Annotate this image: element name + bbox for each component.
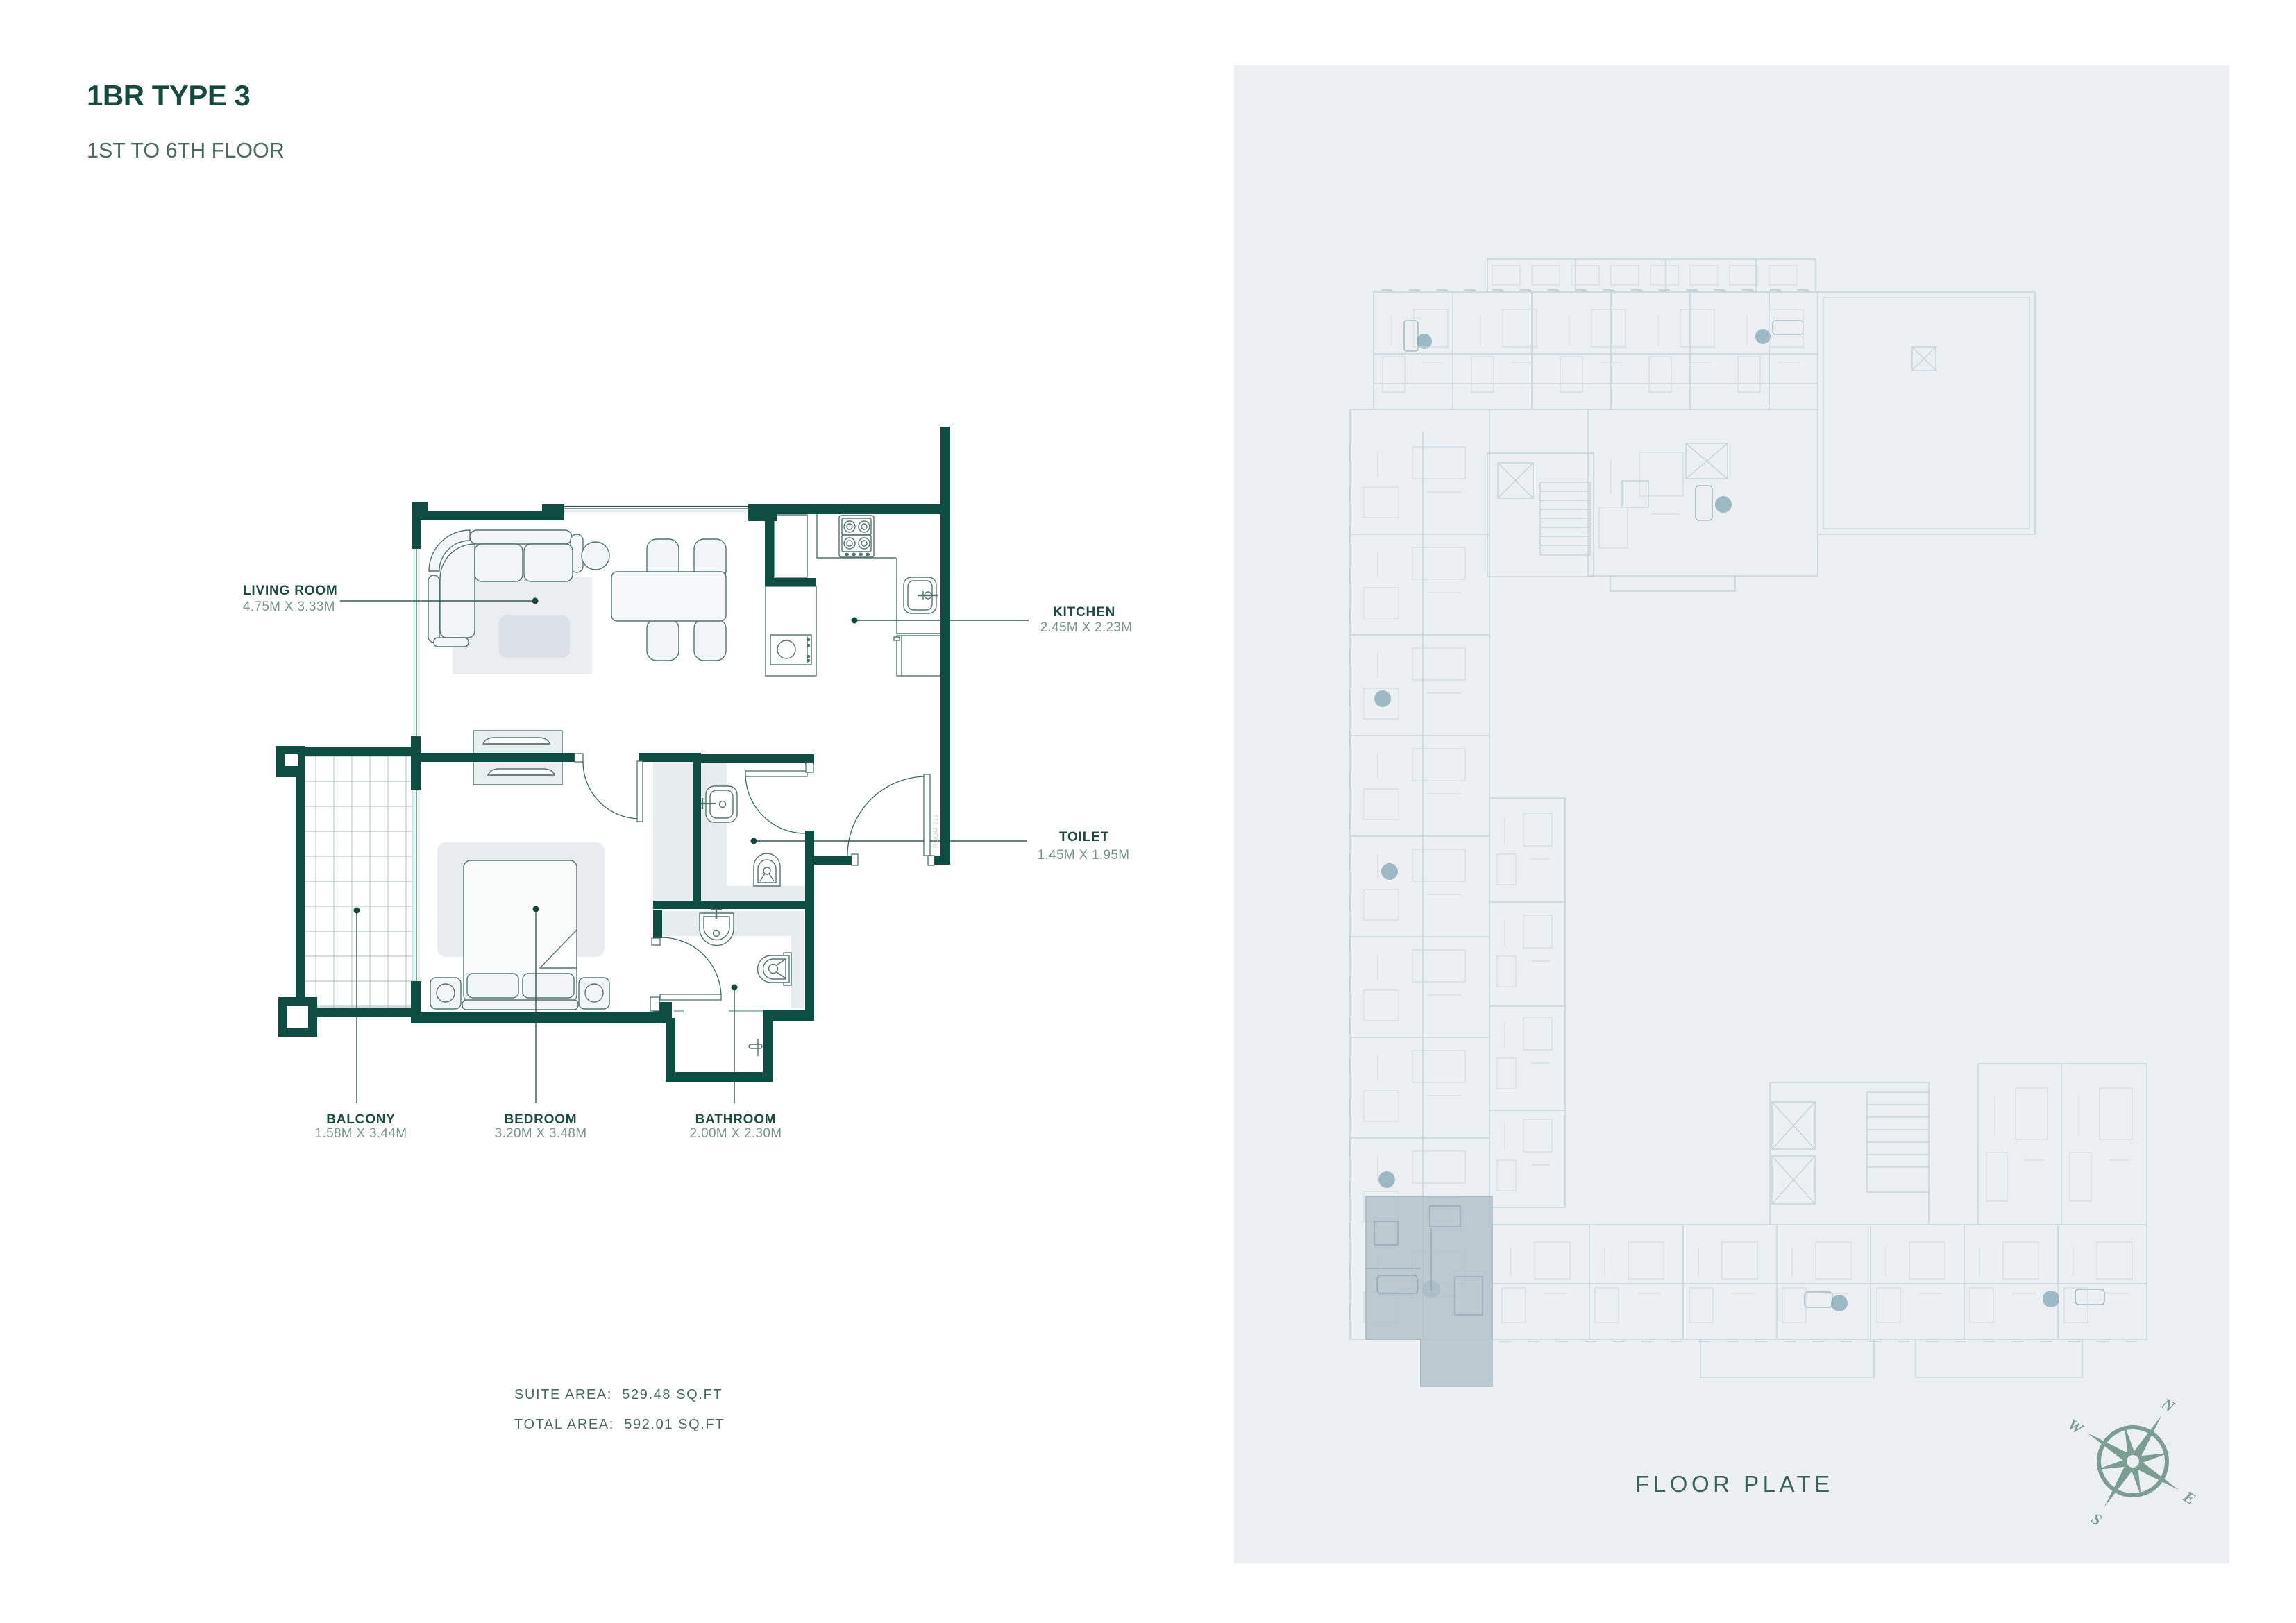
svg-text:SUITE AREA: 529.48 SQ.FT: SUITE AREA: 529.48 SQ.FT bbox=[514, 1387, 723, 1402]
svg-text:1.45M X 1.95M: 1.45M X 1.95M bbox=[1038, 848, 1130, 863]
svg-text:LIVING ROOM: LIVING ROOM bbox=[243, 584, 338, 598]
svg-text:BATHROOM: BATHROOM bbox=[695, 1112, 777, 1127]
svg-text:1ST TO 6TH FLOOR: 1ST TO 6TH FLOOR bbox=[87, 139, 285, 162]
svg-text:1BR TYPE 3: 1BR TYPE 3 bbox=[87, 79, 250, 112]
svg-text:2.00M X 2.30M: 2.00M X 2.30M bbox=[690, 1126, 782, 1141]
svg-text:ROOM 211: ROOM 211 bbox=[932, 814, 939, 848]
svg-text:1.58M X 3.44M: 1.58M X 3.44M bbox=[315, 1126, 407, 1141]
svg-text:TOILET: TOILET bbox=[1059, 830, 1109, 844]
svg-text:3.20M X 3.48M: 3.20M X 3.48M bbox=[495, 1126, 587, 1141]
svg-text:KITCHEN: KITCHEN bbox=[1053, 605, 1115, 620]
svg-text:FLOOR PLATE: FLOOR PLATE bbox=[1635, 1471, 1833, 1497]
svg-text:2.45M X 2.23M: 2.45M X 2.23M bbox=[1040, 620, 1133, 635]
svg-text:BEDROOM: BEDROOM bbox=[505, 1112, 577, 1127]
svg-text:BALCONY: BALCONY bbox=[326, 1112, 396, 1127]
svg-text:TOTAL AREA: 592.01 SQ.FT: TOTAL AREA: 592.01 SQ.FT bbox=[514, 1417, 725, 1432]
svg-text:4.75M X 3.33M: 4.75M X 3.33M bbox=[243, 600, 335, 614]
